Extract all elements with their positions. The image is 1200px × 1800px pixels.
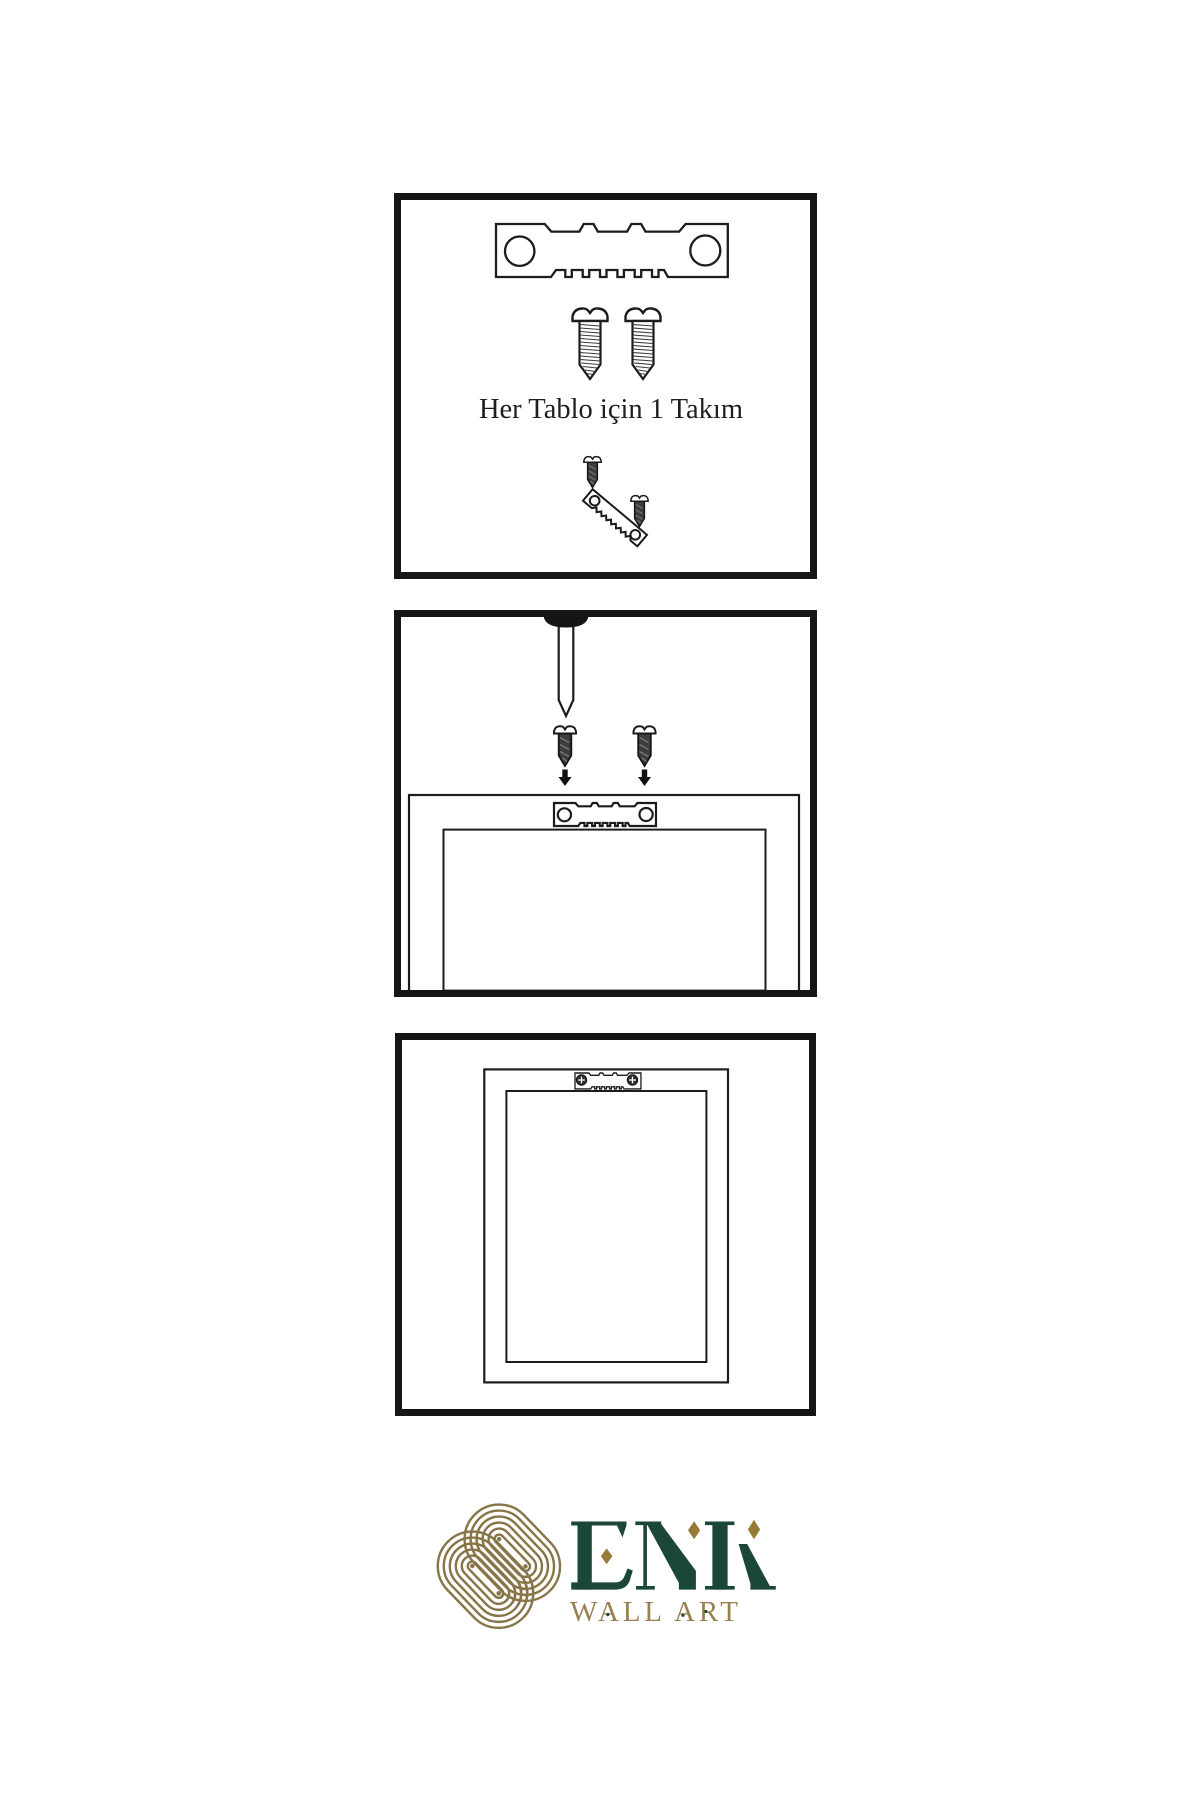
svg-text:Her Tablo için 1 Takım: Her Tablo için 1 Takım xyxy=(479,394,743,425)
svg-text:WALL ART: WALL ART xyxy=(570,1596,742,1628)
